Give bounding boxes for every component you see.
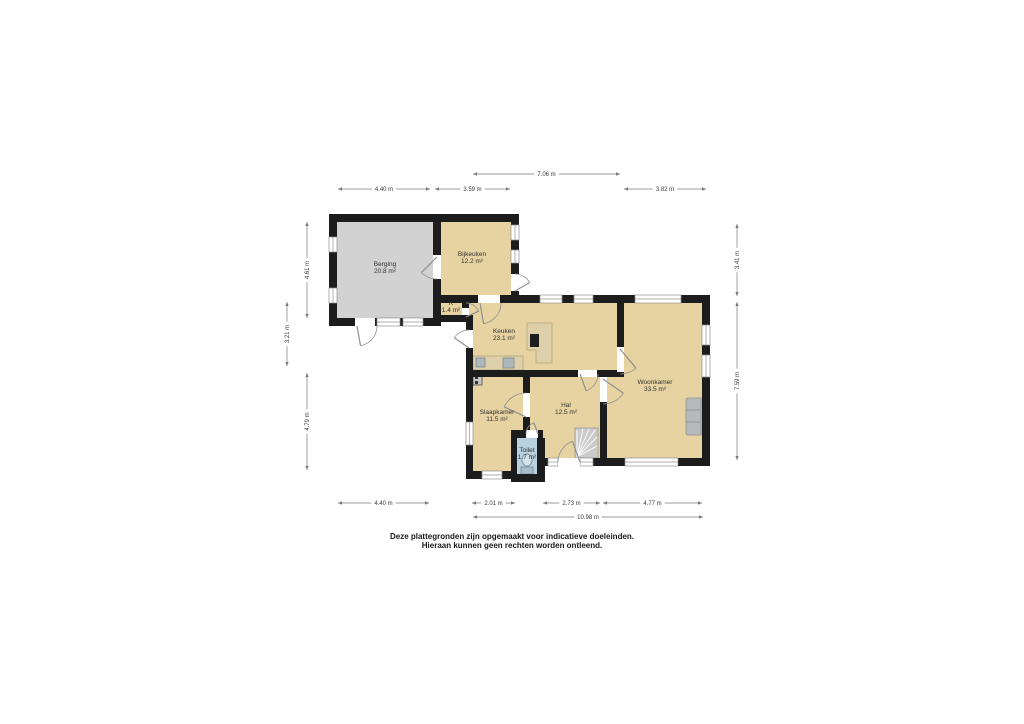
dimension-arrow bbox=[338, 187, 342, 190]
wall bbox=[511, 430, 517, 479]
wall bbox=[329, 318, 355, 326]
wall bbox=[511, 263, 519, 274]
dimension-label: 2.01 m bbox=[484, 501, 502, 507]
wall bbox=[473, 370, 578, 377]
dimension-label-group: 7.59 m bbox=[734, 369, 742, 393]
room-area-k: 1.4 m² bbox=[442, 307, 461, 314]
wall bbox=[441, 295, 478, 303]
room-name-keuken: Keuken bbox=[493, 328, 515, 335]
dimension-arrow bbox=[616, 172, 620, 175]
dimension-arrow bbox=[305, 373, 308, 377]
dimension-arrow bbox=[305, 466, 308, 470]
dimension-label: 3.21 m bbox=[285, 325, 291, 343]
dimension-arrow bbox=[506, 187, 510, 190]
room-area-toilet: 1.7 m² bbox=[518, 454, 537, 461]
dimension-label: 4.40 m bbox=[374, 501, 392, 507]
wall bbox=[466, 471, 482, 479]
wall bbox=[500, 295, 540, 303]
dimension-arrow bbox=[735, 302, 738, 306]
dimension-arrow bbox=[285, 362, 288, 366]
dimension-arrow bbox=[596, 501, 600, 504]
room-name-slaapkamer: Slaapkamer bbox=[480, 409, 516, 416]
dimension-arrow bbox=[425, 501, 429, 504]
dimension-arrow bbox=[435, 187, 439, 190]
cooktop bbox=[530, 334, 539, 347]
toilet-tank bbox=[521, 467, 533, 474]
room-area-hal: 12.5 m² bbox=[555, 409, 578, 416]
dimension-label: 10.98 m bbox=[577, 515, 599, 521]
dimension-label: 7.59 m bbox=[735, 372, 741, 390]
floorplan-svg: Berging20.8 m²Bijkeuken12.2 m²K1.4 m²Keu… bbox=[0, 0, 1024, 724]
kitchen-appliance bbox=[503, 358, 514, 368]
wall bbox=[466, 315, 473, 330]
dimension-label: 3.41 m bbox=[735, 251, 741, 269]
wall bbox=[593, 295, 635, 303]
dimension-arrow bbox=[543, 501, 547, 504]
room-area-slaapkamer: 11.5 m² bbox=[486, 416, 508, 423]
wall bbox=[400, 318, 403, 326]
dimension-label-group: 3.21 m bbox=[284, 322, 292, 346]
dimension-arrow bbox=[702, 187, 706, 190]
door-opening-voordeur bbox=[558, 458, 580, 466]
wall bbox=[466, 348, 473, 422]
room-name-hal: Hal bbox=[561, 402, 571, 409]
wall bbox=[678, 458, 710, 466]
disclaimer-line2: Hieraan kunnen geen rechten worden ontle… bbox=[0, 542, 1024, 551]
dimension-arrow bbox=[735, 292, 738, 296]
door-swing-arc-berging-buitendeur bbox=[361, 326, 378, 346]
dimension-arrow bbox=[735, 456, 738, 460]
room-area-bijkeuken: 12.2 m² bbox=[461, 258, 484, 265]
wall bbox=[562, 295, 574, 303]
door-opening-keuken-woonkamer-deur bbox=[617, 347, 624, 372]
dimension-label: 4.79 m bbox=[305, 412, 311, 430]
dimension-label: 4.40 m bbox=[375, 187, 393, 193]
room-name-woonkamer: Woonkamer bbox=[638, 379, 674, 386]
dimension-arrow bbox=[624, 187, 628, 190]
wall bbox=[523, 377, 530, 393]
disclaimer: Deze plattegronden zijn opgemaakt voor i… bbox=[0, 533, 1024, 550]
wall bbox=[702, 295, 710, 325]
wall bbox=[511, 240, 519, 250]
meter-box-detail bbox=[475, 381, 478, 384]
room-name-toilet: Toilet bbox=[519, 447, 534, 454]
kitchen-sink bbox=[476, 358, 485, 367]
room-name-berging: Berging bbox=[374, 261, 397, 268]
wall bbox=[329, 214, 519, 222]
dimension-label-group: 4.79 m bbox=[304, 409, 312, 433]
wall bbox=[538, 430, 543, 438]
dimension-arrow bbox=[735, 224, 738, 228]
wall bbox=[617, 303, 624, 347]
wall bbox=[433, 214, 441, 255]
dimension-arrow bbox=[285, 302, 288, 306]
dimension-arrow bbox=[511, 501, 515, 504]
dimension-label: 7.06 m bbox=[537, 172, 555, 178]
door-opening-keuken-buitendeur bbox=[466, 330, 473, 348]
room-area-woonkamer: 33.5 m² bbox=[644, 386, 667, 393]
dimension-arrow bbox=[699, 515, 703, 518]
door-opening-bijkeuken-keuken-deur bbox=[478, 295, 500, 303]
dimension-label-group: 3.41 m bbox=[734, 248, 742, 272]
room-name-bijkeuken: Bijkeuken bbox=[458, 251, 487, 258]
dimension-label: 3.82 m bbox=[656, 187, 674, 193]
room-area-keuken: 23.1 m² bbox=[493, 335, 516, 342]
dimension-arrow bbox=[473, 515, 477, 518]
dimension-label: 4.61 m bbox=[305, 261, 311, 279]
dimension-arrow bbox=[603, 501, 607, 504]
wall bbox=[702, 377, 710, 466]
wall bbox=[593, 458, 625, 466]
dimension-arrow bbox=[338, 501, 342, 504]
room-name-k: K bbox=[449, 300, 454, 307]
dimension-label: 4.77 m bbox=[643, 501, 661, 507]
wall bbox=[702, 345, 710, 355]
wall bbox=[329, 252, 337, 288]
wall bbox=[537, 438, 545, 479]
dimension-label: 2.73 m bbox=[562, 501, 580, 507]
wall bbox=[523, 417, 530, 430]
dimension-arrow bbox=[472, 501, 476, 504]
floorplan-page: Berging20.8 m²Bijkeuken12.2 m²K1.4 m²Keu… bbox=[0, 0, 1024, 724]
dimension-label-group: 4.61 m bbox=[304, 258, 312, 282]
room-area-berging: 20.8 m² bbox=[374, 268, 397, 275]
door-opening-hal-toilet-deur bbox=[526, 430, 538, 438]
door-opening-bijkeuken-buitendeur bbox=[511, 274, 519, 291]
dimension-arrow bbox=[473, 172, 477, 175]
wall bbox=[511, 214, 519, 225]
dimension-arrow bbox=[426, 187, 430, 190]
dimension-arrow bbox=[305, 314, 308, 318]
dimension-label: 3.59 m bbox=[463, 187, 481, 193]
dimension-arrow bbox=[305, 222, 308, 226]
door-opening-berging-buitendeur bbox=[355, 318, 375, 326]
wall bbox=[329, 214, 337, 237]
wall bbox=[600, 402, 607, 466]
door-leaf-berging-buitendeur bbox=[357, 326, 361, 346]
door-opening-berging-bijkeuken-deur bbox=[433, 255, 441, 279]
dimension-arrow bbox=[698, 501, 702, 504]
door-opening-hal-slaapkamer-deur bbox=[523, 393, 530, 417]
